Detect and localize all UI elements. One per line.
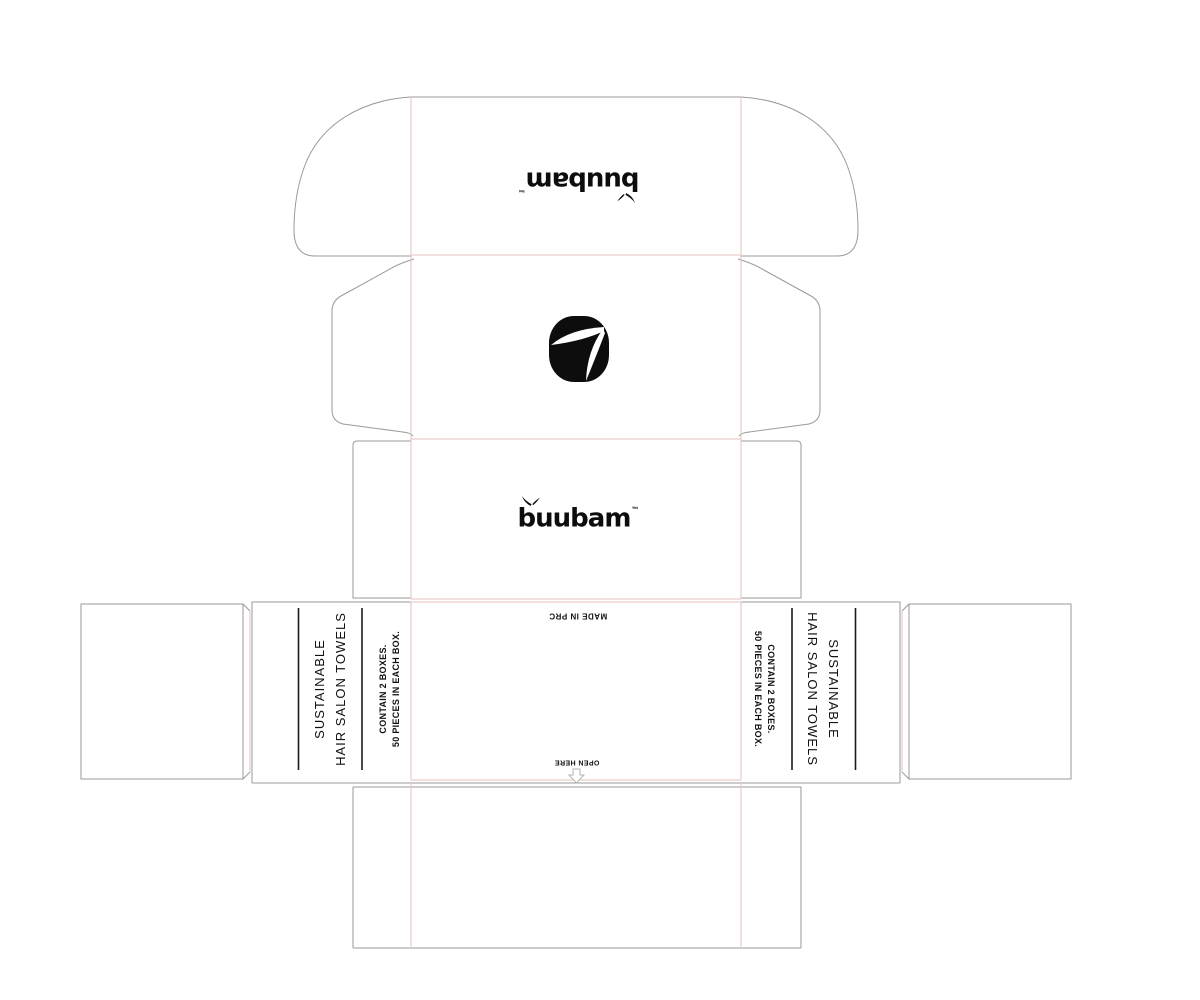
- made-in-text: MADE IN PRC: [549, 612, 607, 621]
- title-line-2: HAIR SALON TOWELS: [802, 539, 823, 839]
- trademark-symbol: ™: [631, 507, 638, 514]
- contents-line-2: 50 PIECES IN EACH BOX.: [390, 574, 403, 804]
- brand-wordmark: buubam: [527, 168, 640, 194]
- title-line-2: HAIR SALON TOWELS: [330, 539, 351, 839]
- left-panel-title: SUSTAINABLE HAIR SALON TOWELS: [309, 539, 351, 839]
- glue-tab-left: [243, 604, 250, 779]
- bottom-panel-outline: [353, 787, 801, 948]
- brand-word: buubam ™: [518, 506, 639, 532]
- brand-word: buubam ™: [519, 168, 640, 194]
- packaging-dieline-canvas: buubam ™ buubam ™ SUSTAINABLE HAIR SALON…: [0, 0, 1200, 1000]
- bamboo-leaves-squircle-icon: [549, 316, 609, 382]
- left-panel-contents-note: CONTAIN 2 BOXES. 50 PIECES IN EACH BOX.: [377, 574, 403, 804]
- brand-wordmark: buubam: [518, 506, 631, 532]
- lid-left-shoulder: [294, 97, 411, 256]
- open-here-arrow-icon: [569, 769, 584, 783]
- glue-tab-right: [902, 604, 909, 779]
- dust-flap-left: [332, 259, 414, 436]
- trademark-symbol: ™: [519, 186, 526, 193]
- contents-line-2: 50 PIECES IN EACH BOX.: [751, 574, 764, 804]
- outer-flap-right: [909, 604, 1071, 779]
- title-line-1: SUSTAINABLE: [823, 539, 844, 839]
- right-panel-title: SUSTAINABLE HAIR SALON TOWELS: [802, 539, 844, 839]
- outer-flap-left: [81, 604, 243, 779]
- brand-lockup-lid: buubam ™: [519, 168, 640, 205]
- open-here-text: OPEN HERE: [555, 759, 600, 766]
- contents-line-1: CONTAIN 2 BOXES.: [377, 574, 390, 804]
- contents-line-1: CONTAIN 2 BOXES.: [764, 574, 777, 804]
- right-panel-contents-note: CONTAIN 2 BOXES. 50 PIECES IN EACH BOX.: [751, 574, 777, 804]
- brand-lockup-front: buubam ™: [518, 495, 639, 532]
- lid-right-shoulder: [741, 97, 858, 256]
- title-line-1: SUSTAINABLE: [309, 539, 330, 839]
- dust-flap-right: [738, 259, 820, 436]
